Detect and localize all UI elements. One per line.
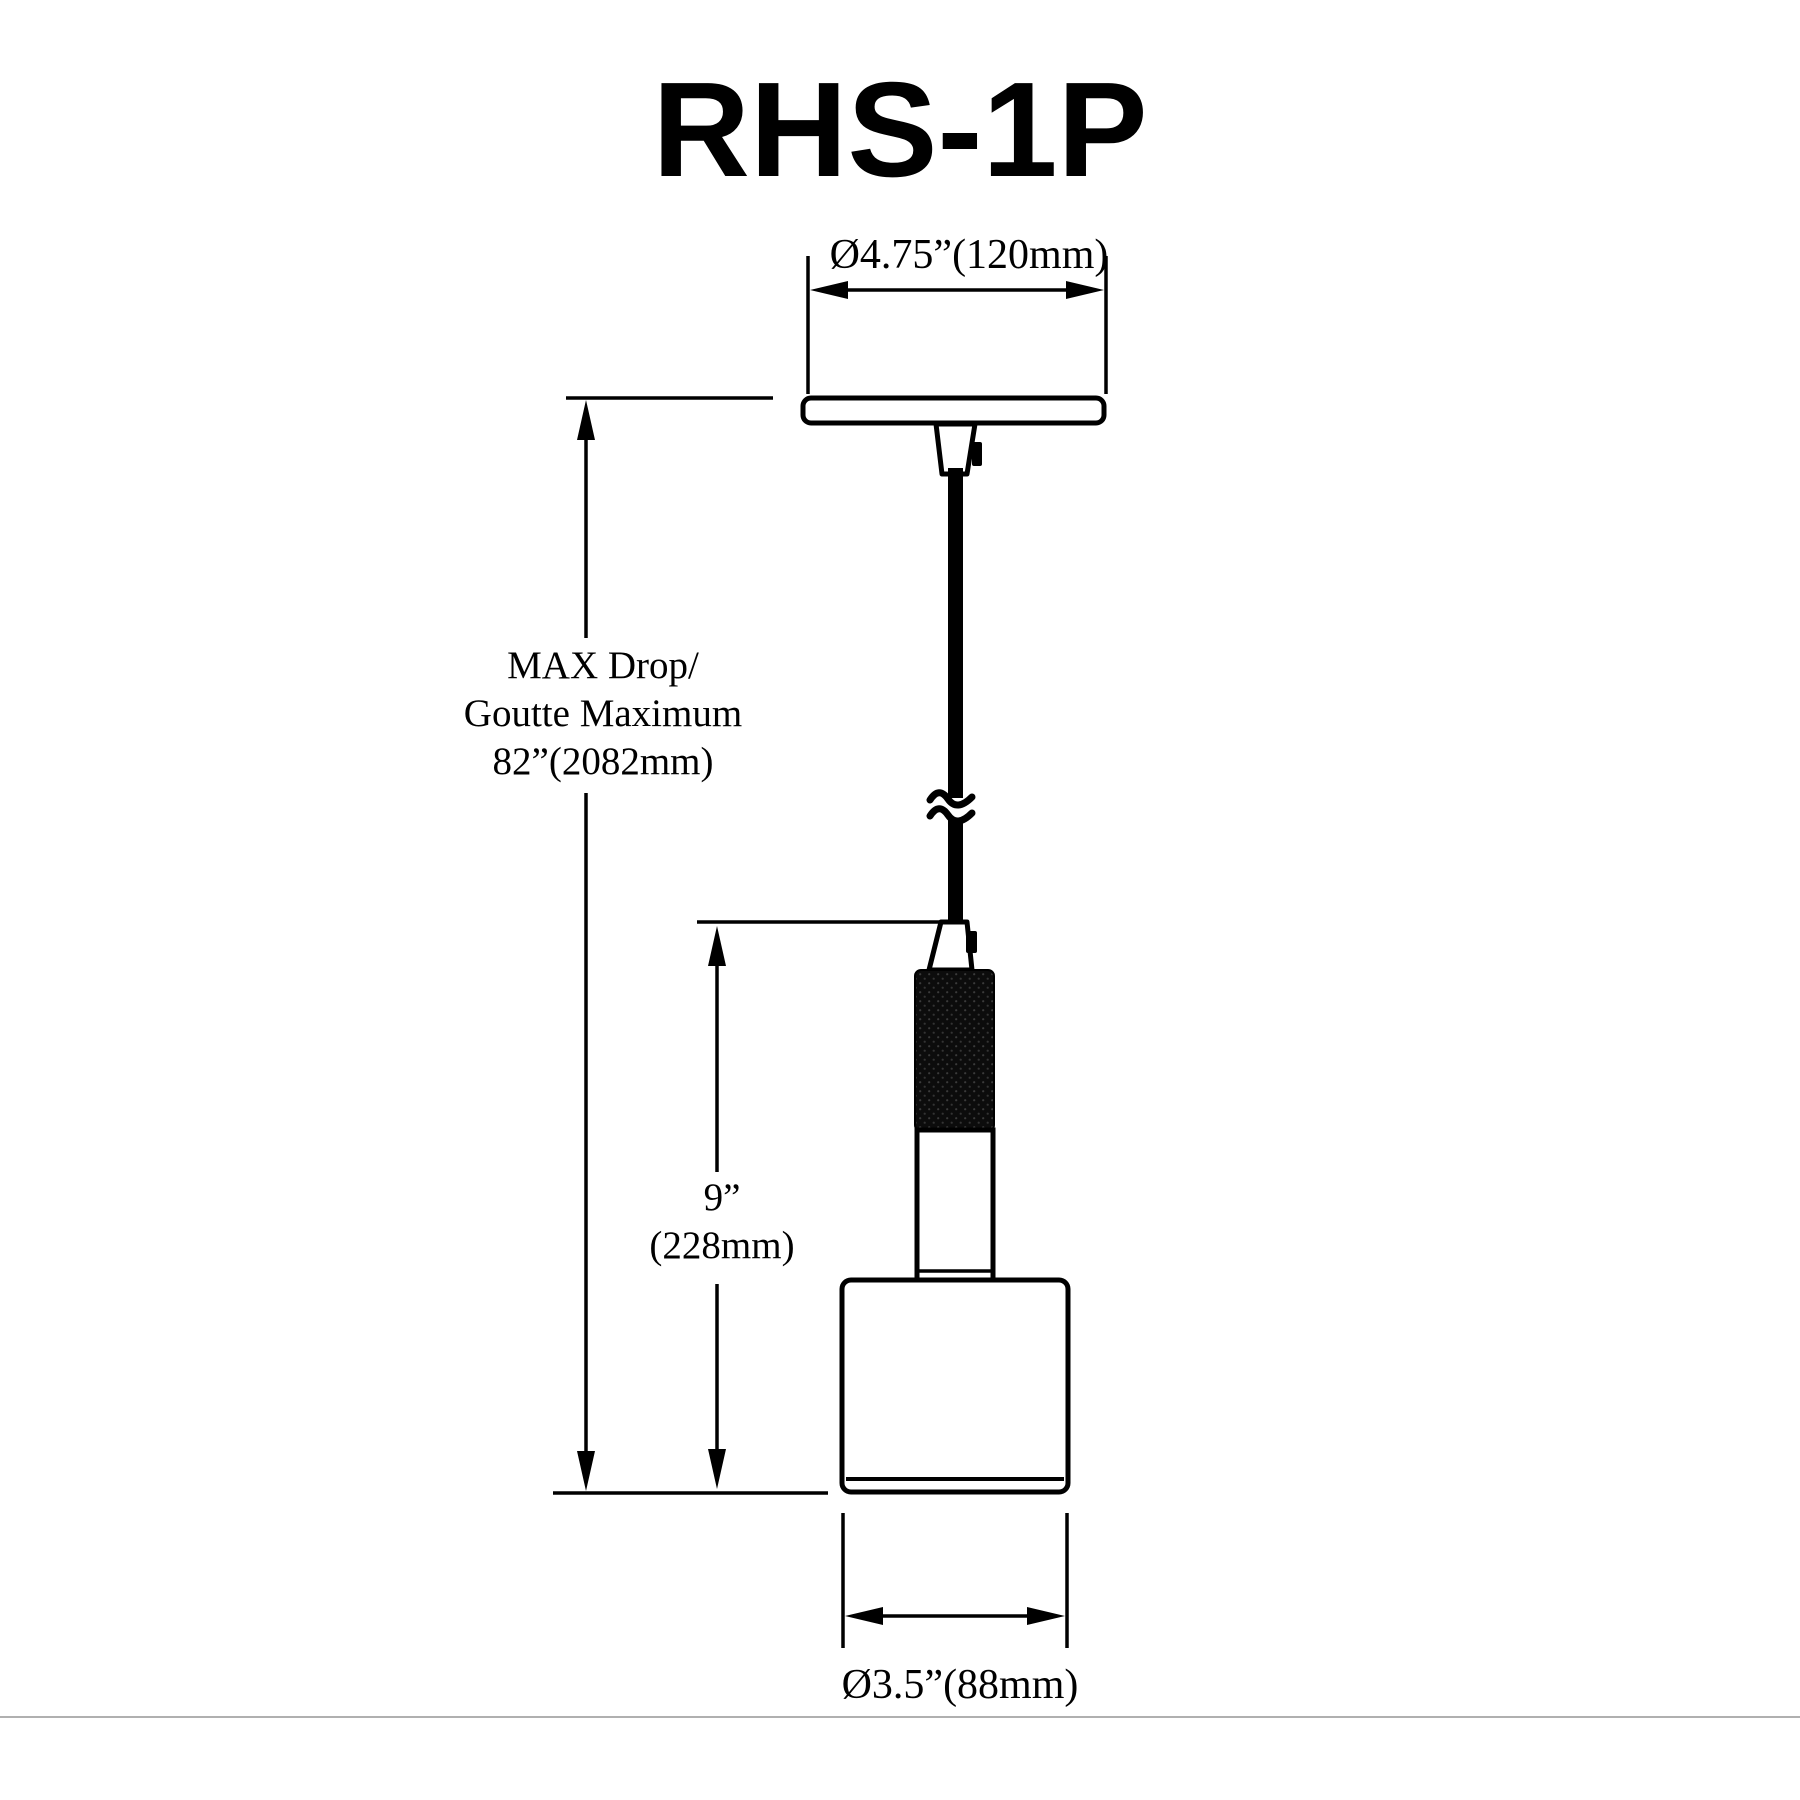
canopy-diameter-label: Ø4.75”(120mm): [830, 232, 1109, 278]
arrow-down-icon: [577, 1451, 595, 1491]
max-drop-label-line2: Goutte Maximum: [464, 692, 742, 735]
pendant-dimension-diagram: RHS-1P Ø4.75”(120mm): [0, 0, 1800, 1800]
max-drop-label-line1: MAX Drop/: [507, 644, 699, 687]
cord-break-icon: [930, 809, 972, 821]
page-title: RHS-1P: [652, 54, 1147, 205]
body-height-label-line2: (228mm): [649, 1224, 794, 1267]
arrow-right-icon: [1066, 281, 1104, 299]
cord-lower-segment: [948, 820, 963, 924]
arrow-down-icon: [708, 1449, 726, 1489]
canopy-plate: [803, 398, 1104, 423]
arrow-up-icon: [708, 926, 726, 966]
max-drop-label-line3: 82”(2082mm): [493, 740, 714, 783]
socket-grip-clip: [966, 931, 977, 953]
spec-sheet-page: RHS-1P Ø4.75”(120mm): [0, 0, 1800, 1800]
shade-body: [842, 1280, 1068, 1492]
arrow-right-icon: [1027, 1607, 1065, 1625]
arrow-left-icon: [845, 1607, 883, 1625]
socket-body: [917, 1130, 993, 1280]
cord-upper-segment: [948, 468, 963, 798]
canopy-cord-grip: [936, 424, 975, 474]
arrow-up-icon: [577, 400, 595, 440]
cord-grip-clip: [972, 442, 982, 466]
body-height-label-line1: 9”: [704, 1176, 741, 1219]
shade-diameter-label: Ø3.5”(88mm): [842, 1662, 1079, 1708]
socket-cord-grip: [929, 922, 972, 970]
knurled-grip-section: [915, 970, 994, 1131]
arrow-left-icon: [810, 281, 848, 299]
